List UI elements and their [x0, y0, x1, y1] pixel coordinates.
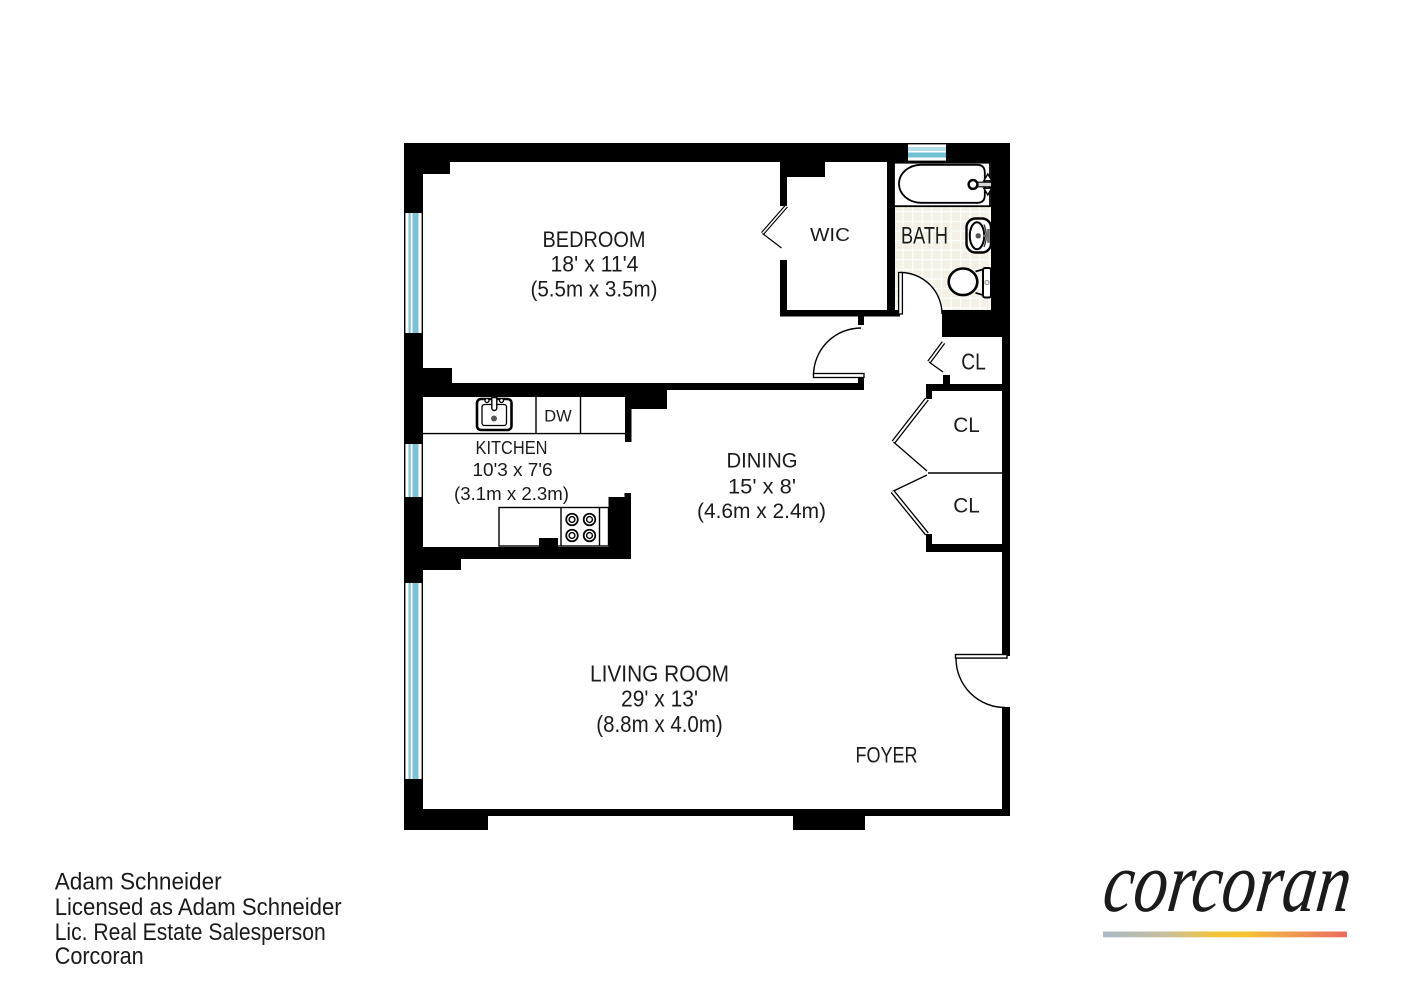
svg-text:(8.8m x 4.0m): (8.8m x 4.0m)	[596, 711, 723, 737]
svg-text:(5.5m x 3.5m): (5.5m x 3.5m)	[531, 277, 658, 302]
svg-text:Licensed as Adam Schneider: Licensed as Adam Schneider	[55, 894, 342, 921]
svg-text:WIC: WIC	[810, 224, 850, 245]
svg-text:FOYER: FOYER	[856, 743, 918, 768]
svg-text:Adam Schneider: Adam Schneider	[55, 869, 222, 896]
svg-text:15' x 8': 15' x 8'	[728, 475, 796, 499]
svg-text:CL: CL	[953, 413, 980, 437]
svg-text:Corcoran: Corcoran	[55, 943, 144, 970]
svg-text:CL: CL	[961, 348, 986, 374]
svg-text:DW: DW	[544, 408, 572, 426]
svg-text:LIVING ROOM: LIVING ROOM	[590, 661, 729, 687]
svg-text:BATH: BATH	[901, 223, 948, 250]
svg-text:29' x 13': 29' x 13'	[621, 686, 698, 712]
svg-text:10'3 x 7'6: 10'3 x 7'6	[473, 459, 553, 480]
svg-text:DINING: DINING	[727, 449, 798, 473]
svg-text:Lic. Real Estate Salesperson: Lic. Real Estate Salesperson	[55, 919, 326, 946]
svg-text:corcoran: corcoran	[1099, 834, 1358, 930]
svg-text:(4.6m x 2.4m): (4.6m x 2.4m)	[697, 499, 826, 523]
svg-text:KITCHEN: KITCHEN	[476, 437, 548, 458]
svg-text:CL: CL	[953, 494, 980, 518]
svg-text:BEDROOM: BEDROOM	[543, 227, 646, 252]
svg-text:18' x 11'4: 18' x 11'4	[551, 252, 639, 277]
svg-text:(3.1m x 2.3m): (3.1m x 2.3m)	[454, 483, 569, 504]
